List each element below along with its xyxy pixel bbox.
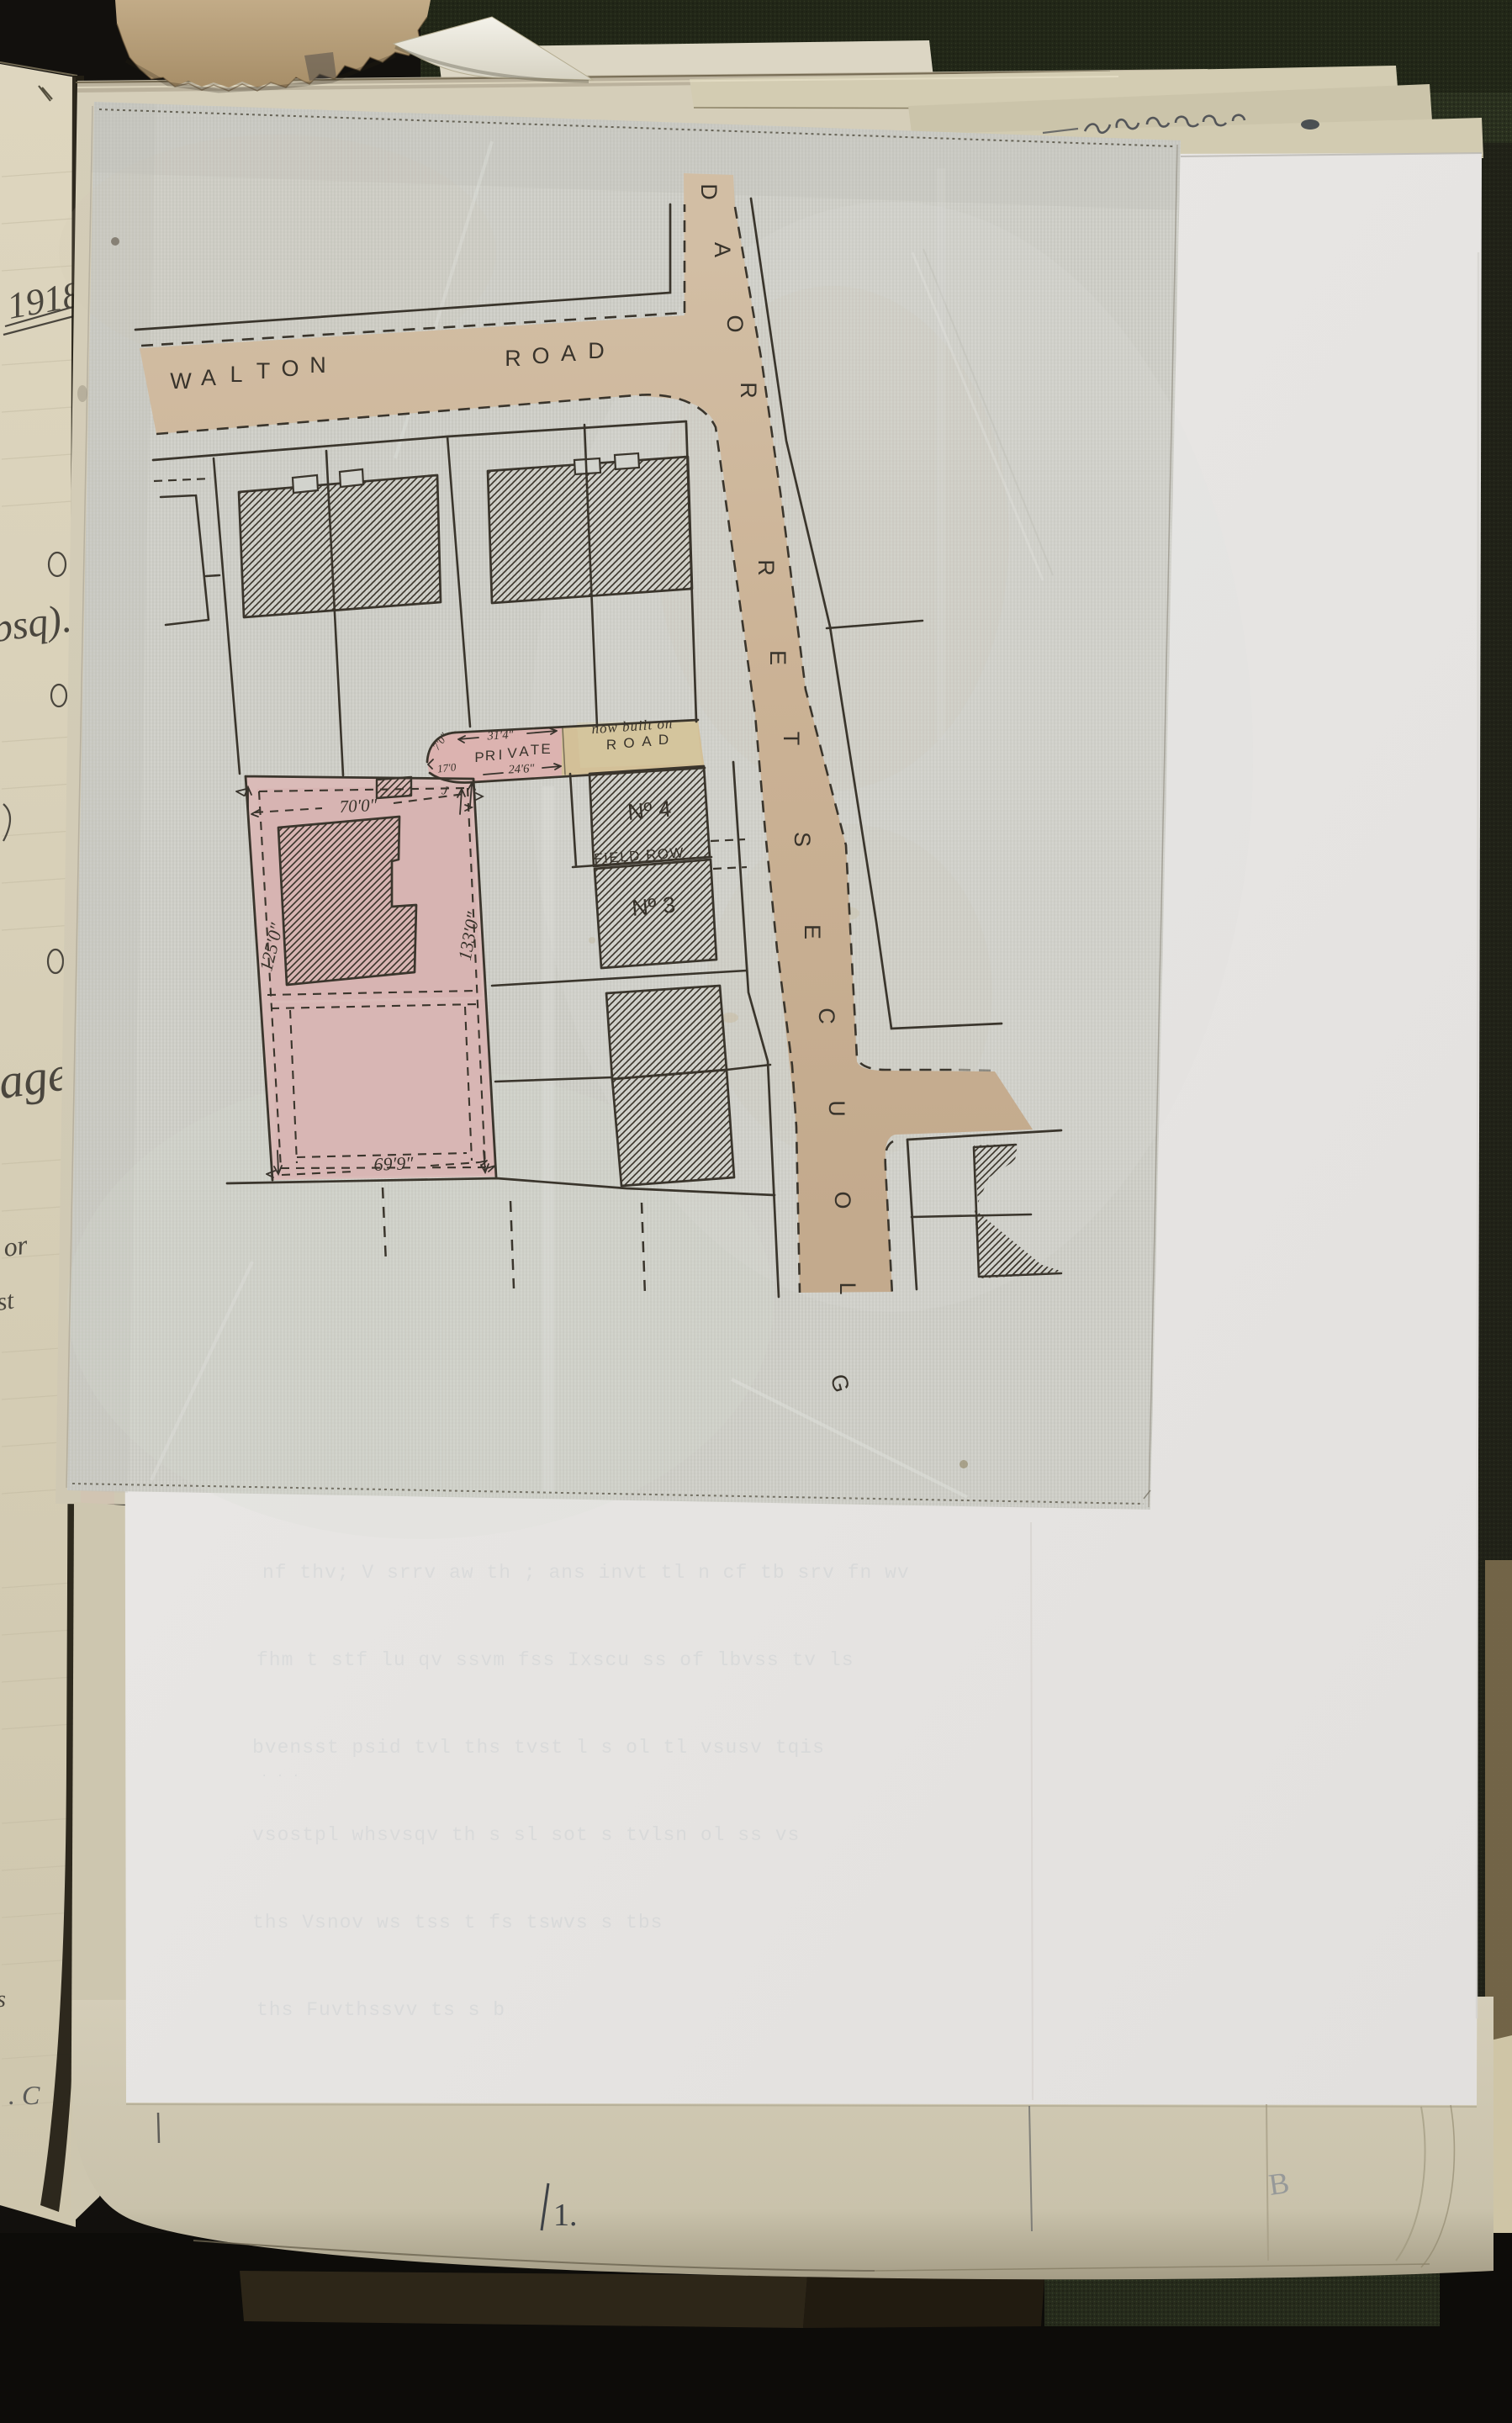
svg-text:Nº 4: Nº 4 xyxy=(626,796,672,825)
svg-text:W: W xyxy=(170,368,192,394)
svg-text:O: O xyxy=(281,356,299,381)
svg-text:O: O xyxy=(722,315,748,332)
svg-text:E: E xyxy=(765,650,790,665)
svg-text:R: R xyxy=(736,382,761,399)
svg-text:17′0: 17′0 xyxy=(436,760,457,775)
svg-text:ths Fuvthssvv ts s b: ths Fuvthssvv ts s b xyxy=(256,1999,505,2021)
svg-text:31′4″: 31′4″ xyxy=(486,728,515,743)
svg-text:R: R xyxy=(485,748,495,764)
svg-text:D: D xyxy=(658,732,669,748)
svg-text:O: O xyxy=(830,1191,855,1209)
svg-text:T: T xyxy=(256,358,271,384)
svg-text:L: L xyxy=(835,1282,860,1294)
svg-text:A: A xyxy=(642,733,652,749)
svg-text:fhm t stf lu qv ssvm fss: fhm t stf lu qv ssvm fss Ixscu ss of lbv… xyxy=(256,1649,854,1671)
svg-text:D: D xyxy=(588,338,605,363)
svg-text:70′0″: 70′0″ xyxy=(339,795,378,817)
svg-text:. C: . C xyxy=(8,2080,40,2110)
svg-text:ths Vsnov ws tss t: ths Vsnov ws tss t fs tswvs s tbs xyxy=(252,1912,663,1934)
svg-text:1.: 1. xyxy=(553,2198,578,2233)
svg-text:A: A xyxy=(519,743,529,759)
svg-text:I: I xyxy=(499,747,503,763)
svg-text:L: L xyxy=(230,362,242,387)
svg-text:D: D xyxy=(696,183,722,200)
svg-text:Nº 3: Nº 3 xyxy=(631,892,676,921)
svg-text:O: O xyxy=(531,343,549,368)
svg-text:R: R xyxy=(753,559,779,576)
svg-text:A: A xyxy=(561,341,576,366)
svg-text:R: R xyxy=(505,346,521,371)
svg-text:A: A xyxy=(201,365,216,390)
svg-text:N: N xyxy=(309,352,326,378)
svg-text:vsostpl whsvsqv th s sl: vsostpl whsvsqv th s sl sot s tvlsn ol s… xyxy=(252,1824,800,1846)
svg-text:bvensst psid tvl ths tvst: bvensst psid tvl ths tvst l s ol tl vsus… xyxy=(252,1737,825,1759)
svg-text:s: s xyxy=(0,1987,6,2013)
svg-text:S: S xyxy=(790,832,815,847)
svg-text:V: V xyxy=(507,745,517,761)
svg-text:T: T xyxy=(531,742,539,758)
svg-text:A: A xyxy=(710,242,735,257)
svg-text:E: E xyxy=(800,924,825,939)
svg-text:24′6″: 24′6″ xyxy=(508,762,536,777)
svg-text:R: R xyxy=(606,737,616,753)
svg-text:U: U xyxy=(824,1100,849,1117)
svg-text:age: age xyxy=(0,1045,72,1109)
svg-text:. . .: . . . xyxy=(261,1767,300,1780)
svg-text:P: P xyxy=(474,749,484,765)
svg-text:O: O xyxy=(623,735,634,751)
svg-text:nf thv; V srrv aw th ; an: nf thv; V srrv aw th ; ans invt tl n cf … xyxy=(262,1562,910,1584)
svg-text:C: C xyxy=(814,1008,839,1024)
svg-text:or: or xyxy=(2,1229,30,1262)
svg-text:T: T xyxy=(779,732,804,746)
svg-text:69′9″: 69′9″ xyxy=(373,1152,415,1175)
svg-text:E: E xyxy=(541,741,550,757)
